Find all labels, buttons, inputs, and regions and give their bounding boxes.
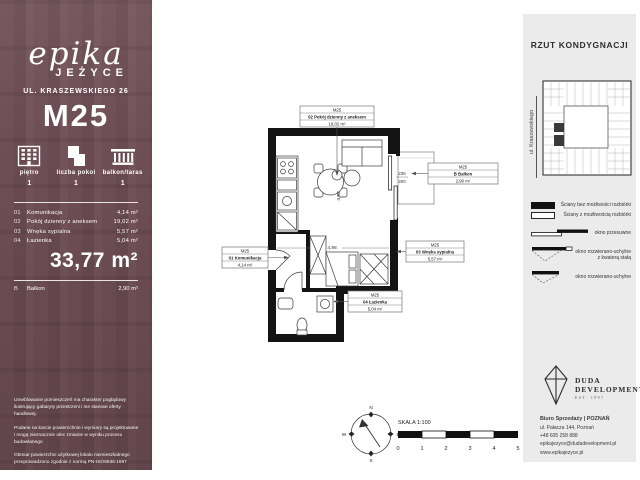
- window-tilt-fixed-glyph: [531, 246, 573, 264]
- label-area: 5,57 m²: [428, 257, 443, 262]
- room-name: Wnęka sypialna: [27, 228, 117, 237]
- label-unit: M25: [431, 243, 440, 248]
- dining-table: [314, 164, 347, 197]
- stat-value: 1: [99, 180, 146, 187]
- wall-solid-swatch: [531, 202, 555, 209]
- street-line: [536, 96, 537, 178]
- keyplan-title: RZUT KONDYGNACJI: [523, 40, 636, 50]
- stat-label: liczba pokoi: [53, 170, 100, 176]
- sofa: [332, 140, 382, 186]
- scale-tick: 2: [444, 446, 447, 452]
- email-address[interactable]: epikajezyce@dudadevelopment.pl: [540, 440, 616, 448]
- room-area: 4,14 m²: [117, 209, 138, 218]
- scale-tick: 1: [420, 446, 423, 452]
- right-sidebar: RZUT KONDYGNACJI ul. Kraszewskiego Ścian…: [523, 14, 636, 462]
- legend-label: okno przesuwne: [595, 230, 631, 236]
- balcony-letter: B: [14, 286, 27, 292]
- total-area: 33,77 m²: [50, 249, 138, 273]
- contact-block: Biuro Sprzedaży | POZNAŃ ul. Pałacza 144…: [540, 415, 616, 457]
- room-row: 01 Komunikacja 4,14 m²: [14, 209, 138, 218]
- scale-tick: 4: [492, 446, 495, 452]
- window-tilt-glyph: [531, 270, 573, 285]
- stat-value: 1: [53, 180, 100, 187]
- room-name: Łazienka: [27, 237, 117, 246]
- disclaimer-1: Umeblowanie pomieszczeń ma charakter pog…: [14, 397, 140, 419]
- label-room: 03 Wnęka sypialna: [416, 250, 455, 255]
- dimension-width: 4,98: [277, 243, 389, 251]
- room-name: Pokój dzienny z aneksem: [27, 218, 114, 227]
- stat-balcony: balkon/taras 1: [99, 145, 146, 187]
- legend-wall-solid: Ściany bez możliwości rozbiórki: [531, 202, 631, 209]
- label-unit: M25: [371, 293, 380, 298]
- dim-living-depth: 3,92: [336, 191, 342, 201]
- dim-living-width: 4,98: [327, 245, 337, 251]
- balcony-row: B Balkon 2,90 m²: [14, 286, 138, 292]
- sales-office: Biuro Sprzedaży | POZNAŃ: [540, 415, 616, 424]
- duda-logo-mark-icon: [543, 364, 569, 411]
- label-area: 4,14 m²: [238, 263, 253, 268]
- compass-s: S: [369, 458, 372, 463]
- label-unit: M25: [459, 165, 468, 170]
- room-number: 04: [14, 237, 27, 246]
- keyplan-drawing: [542, 80, 632, 178]
- room-list: 01 Komunikacja 4,14 m² 02 Pokój dzienny …: [14, 209, 138, 247]
- compass-n: N: [369, 405, 372, 410]
- stat-floor: piętro 1: [6, 145, 53, 187]
- room-row: 03 Wnęka sypialna 5,57 m²: [14, 228, 138, 237]
- room-number: 02: [14, 218, 27, 227]
- dim-window-width: 235: [398, 171, 406, 176]
- developer-name-line2: DEVELOPMENT: [575, 385, 640, 394]
- shaft-hatched: [360, 254, 388, 284]
- developer-name-line1: DUDA: [575, 376, 640, 385]
- label-unit: M25: [241, 249, 250, 254]
- scale-bar: SKALA 1:100 0 1 2 3 4 5: [396, 420, 519, 452]
- building-floor-icon: [6, 145, 53, 167]
- balcony-icon: [99, 145, 146, 167]
- scale-label: SKALA 1:100: [398, 420, 431, 426]
- label-box-sleeping-alcove: M25 03 Wnęka sypialna 5,57 m²: [396, 241, 464, 262]
- balcony-name: Balkon: [27, 286, 118, 292]
- legend-label: okno rozwierano-uchylne: [575, 274, 631, 280]
- legend-label-line1: okno rozwierano-uchylne: [575, 249, 631, 255]
- scale-tick: 3: [468, 446, 471, 452]
- stats-row: piętro 1 liczba pokoi 1: [6, 145, 146, 187]
- compass-rose: N E S W: [342, 405, 400, 463]
- room-name: Komunikacja: [27, 209, 117, 218]
- highlighted-unit: [554, 135, 564, 146]
- doors: [276, 250, 302, 290]
- highlighted-unit: [554, 123, 564, 132]
- compass-e: E: [396, 432, 399, 437]
- wall-removable-swatch: [531, 212, 555, 219]
- sliding-window: [388, 154, 397, 220]
- label-room: 04 Łazienka: [363, 300, 388, 305]
- kitchen-counter: [276, 156, 298, 232]
- rooms-icon: [53, 145, 100, 167]
- street-address: UL. KRASZEWSKIEGO 26: [0, 88, 152, 95]
- legend-label-line2: z kwaterą stałą: [598, 255, 631, 261]
- apartment-card-page: 4,98: [0, 0, 640, 480]
- room-row: 02 Pokój dzienny z aneksem 19,02 m²: [14, 218, 138, 227]
- bathroom-fixtures: [278, 296, 333, 335]
- street-label: ul. Kraszewskiego: [529, 92, 535, 172]
- phone-number[interactable]: +48 605 258 888: [540, 432, 616, 440]
- dim-window-height: 200: [398, 179, 406, 184]
- legend-label: Ściany z możliwością rozbiórki: [563, 212, 631, 218]
- room-number: 01: [14, 209, 27, 218]
- developer-logo: DUDA DEVELOPMENT EST. 1997: [543, 364, 640, 411]
- room-area: 19,02 m²: [114, 218, 138, 227]
- disclaimer-2: Podane na karcie powierzchnie i wymiary …: [14, 425, 140, 447]
- room-area: 5,04 m²: [117, 237, 138, 246]
- unit-number: M25: [0, 98, 152, 134]
- legend-window-tilt: okno rozwierano-uchylne: [531, 270, 631, 285]
- legend-window-sliding: okno przesuwne: [531, 228, 631, 238]
- stat-rooms: liczba pokoi 1: [53, 145, 100, 187]
- disclaimer-3: Obmiar powierzchni użytkowej lokalu niem…: [14, 452, 140, 466]
- brand-logo-sub: JEŻYCE: [0, 67, 128, 79]
- left-sidebar: epika JEŻYCE UL. KRASZEWSKIEGO 26 M25: [0, 0, 152, 470]
- label-unit: M25: [333, 108, 342, 113]
- scale-tick: 5: [516, 446, 519, 452]
- divider: [14, 280, 138, 281]
- balcony-area: 2,90 m²: [118, 286, 138, 292]
- disclaimers: Umeblowanie pomieszczeń ma charakter pog…: [14, 397, 140, 470]
- stat-value: 1: [6, 180, 53, 187]
- label-area: 2,90 m²: [456, 179, 471, 184]
- room-row: 04 Łazienka 5,04 m²: [14, 237, 138, 246]
- label-room: 02 Pokój dzienny z aneksem: [308, 115, 366, 120]
- stat-label: piętro: [6, 170, 53, 176]
- developer-name: DUDA DEVELOPMENT EST. 1997: [575, 376, 640, 400]
- compass-w: W: [342, 432, 347, 437]
- office-address: ul. Pałacza 144, Poznań: [540, 424, 616, 432]
- stat-label: balkon/taras: [99, 170, 146, 176]
- website-url[interactable]: www.epikajezyce.pl: [540, 449, 616, 457]
- legend-window-tilt-fixed: okno rozwierano-uchylne z kwaterą stałą: [531, 246, 631, 264]
- scale-tick: 0: [396, 446, 399, 452]
- developer-est: EST. 1997: [575, 396, 640, 400]
- label-area: 5,04 m²: [368, 307, 383, 312]
- label-room: B Balkon: [454, 172, 473, 177]
- label-area: 19,02 m²: [329, 122, 347, 127]
- room-number: 03: [14, 228, 27, 237]
- room-area: 5,57 m²: [117, 228, 138, 237]
- window-sliding-glyph: [531, 228, 589, 238]
- legend-wall-removable: Ściany z możliwością rozbiórki: [531, 212, 631, 219]
- divider: [14, 202, 138, 203]
- legend-label: okno rozwierano-uchylne z kwaterą stałą: [575, 249, 631, 262]
- legend-label: Ściany bez możliwości rozbiórki: [561, 202, 631, 208]
- label-room: 01 Komunikacja: [229, 256, 262, 261]
